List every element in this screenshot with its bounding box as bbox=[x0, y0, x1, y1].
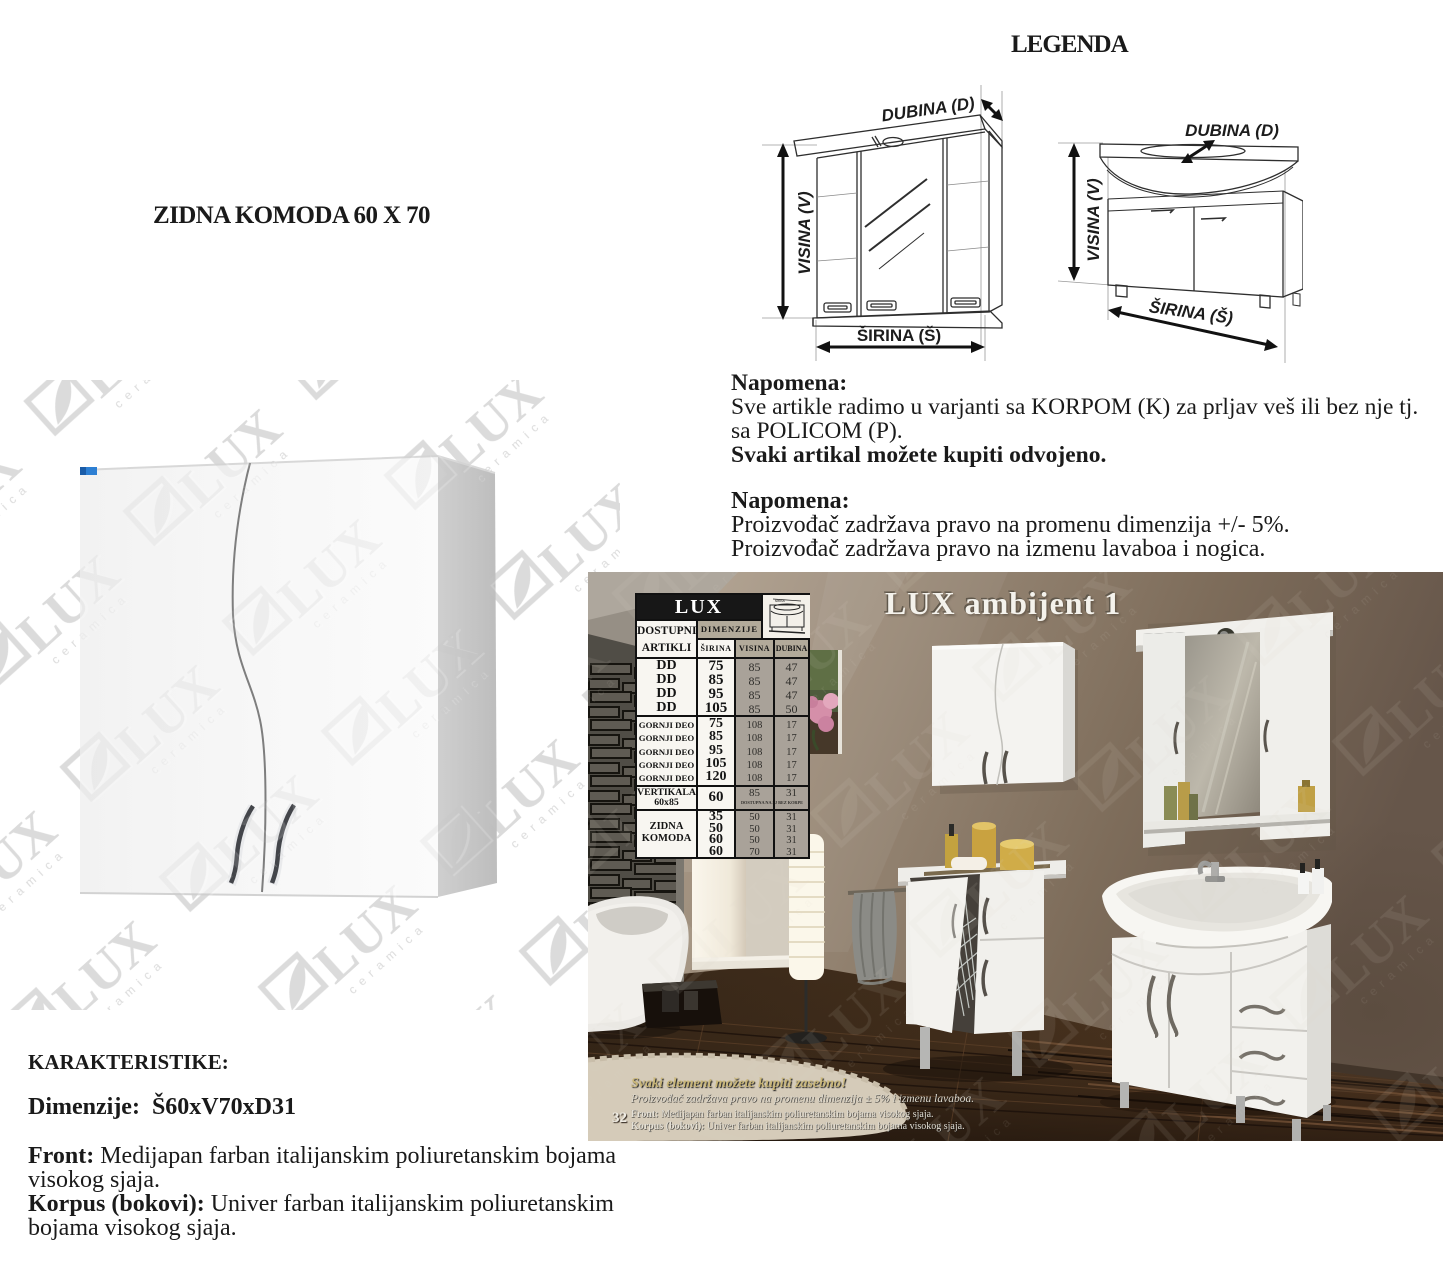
svg-text:širina: širina bbox=[775, 598, 785, 603]
svg-text:ŠIRINA (Š): ŠIRINA (Š) bbox=[1148, 297, 1235, 328]
svg-text:VISINA (V): VISINA (V) bbox=[1084, 178, 1103, 262]
svg-text:ŠIRINA (Š): ŠIRINA (Š) bbox=[857, 326, 941, 345]
svg-text:DUBINA (D): DUBINA (D) bbox=[880, 94, 976, 126]
svg-text:DUBINA (D): DUBINA (D) bbox=[1185, 121, 1279, 140]
svg-text:VISINA (V): VISINA (V) bbox=[795, 191, 814, 275]
